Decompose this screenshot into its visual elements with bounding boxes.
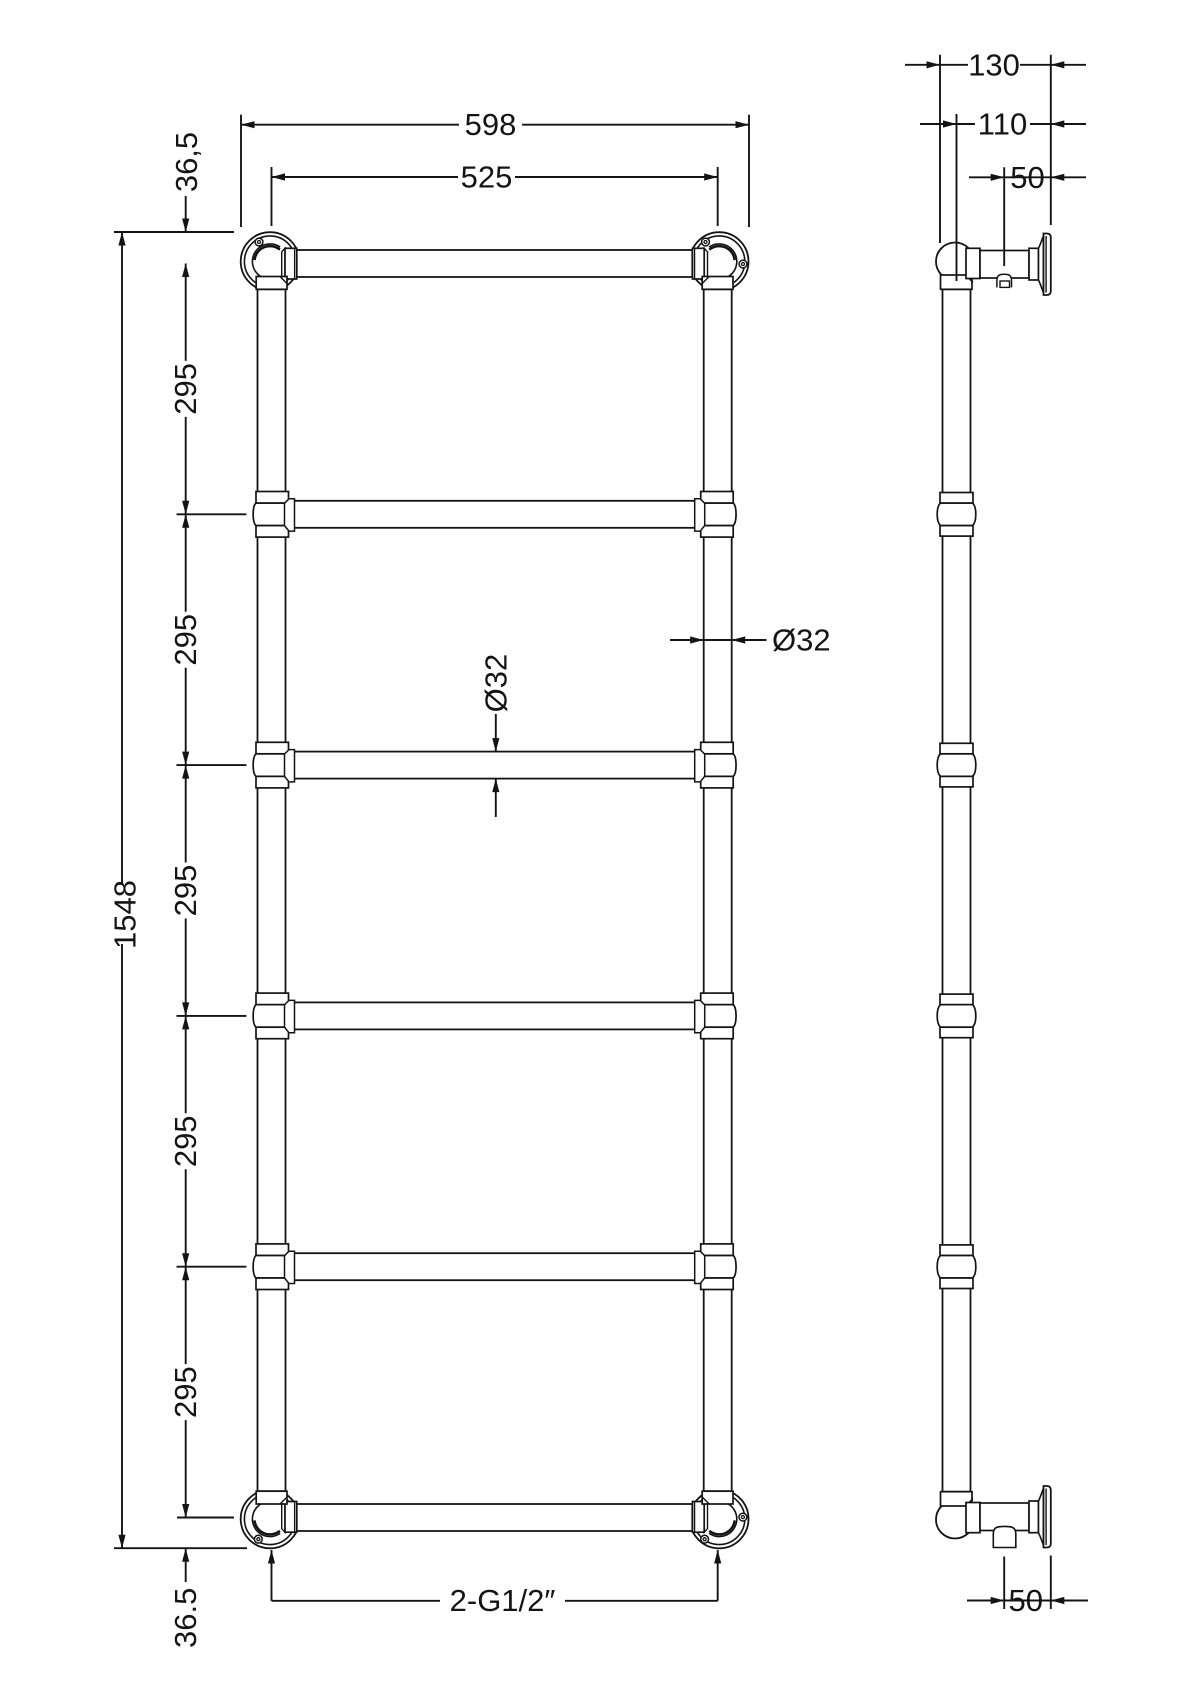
svg-text:525: 525 [461, 160, 513, 195]
svg-text:130: 130 [968, 47, 1020, 82]
svg-text:295: 295 [168, 865, 203, 917]
svg-text:50: 50 [1010, 160, 1044, 195]
svg-text:295: 295 [168, 363, 203, 415]
svg-text:36,5: 36,5 [169, 132, 204, 192]
svg-text:598: 598 [465, 107, 517, 142]
svg-text:1548: 1548 [108, 880, 143, 949]
svg-text:110: 110 [978, 107, 1027, 142]
svg-text:295: 295 [168, 1366, 203, 1418]
svg-text:295: 295 [168, 1115, 203, 1167]
svg-text:295: 295 [168, 614, 203, 666]
svg-text:Ø32: Ø32 [478, 654, 513, 713]
svg-text:50: 50 [1009, 1583, 1043, 1618]
svg-text:2-G1/2″: 2-G1/2″ [450, 1583, 556, 1618]
svg-text:36.5: 36.5 [168, 1588, 203, 1648]
svg-text:Ø32: Ø32 [772, 623, 831, 658]
